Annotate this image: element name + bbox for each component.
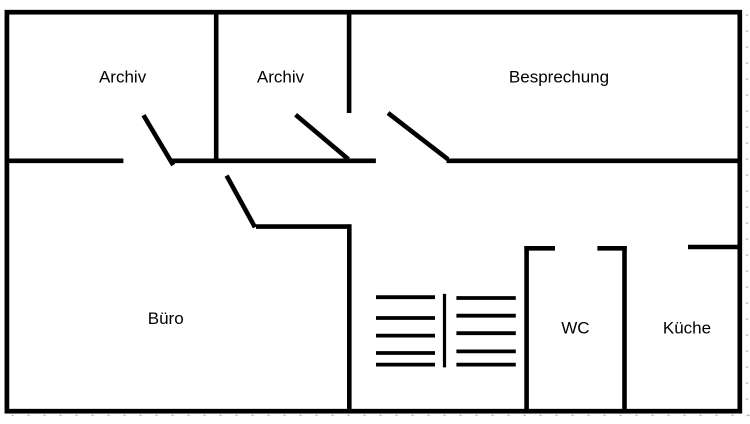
svg-text:Archiv: Archiv	[257, 67, 305, 86]
svg-text:Besprechung: Besprechung	[509, 67, 609, 86]
svg-text:Küche: Küche	[663, 318, 711, 337]
svg-text:Archiv: Archiv	[99, 67, 147, 86]
svg-text:Büro: Büro	[148, 309, 184, 328]
svg-text:WC: WC	[561, 318, 589, 337]
